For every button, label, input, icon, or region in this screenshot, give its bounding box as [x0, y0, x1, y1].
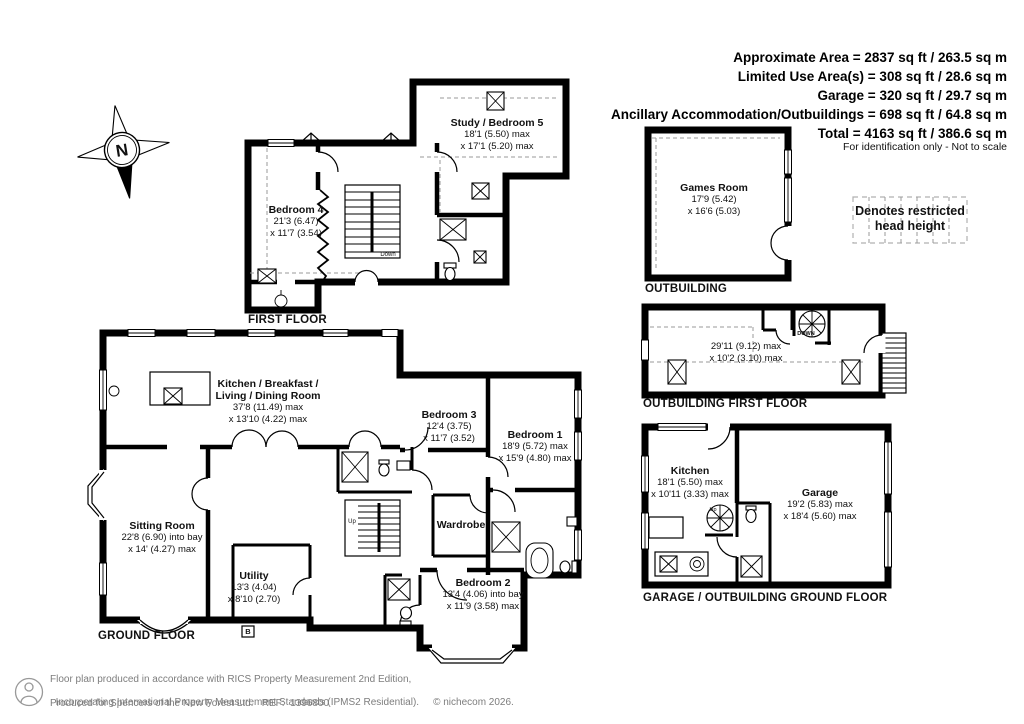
skylight-icon	[487, 92, 504, 110]
outbuilding-first-floor-dims: 29'11 (9.12) max x 10'2 (3.10) max	[709, 341, 782, 365]
room-label-bedroom4: Bedroom 4 21'3 (6.47) x 11'7 (3.54)	[269, 204, 324, 240]
sink-icon	[397, 461, 410, 470]
room-label-sitting-room: Sitting Room 22'8 (6.90) into bay x 14' …	[121, 520, 202, 556]
toilet-icon	[560, 561, 577, 573]
stairs-up-label: Up	[348, 519, 356, 525]
stairs-up-label: Up	[709, 507, 716, 513]
room-label-bedroom1: Bedroom 1 18'9 (5.72) max x 15'9 (4.80) …	[498, 429, 571, 465]
ground-floor-title: GROUND FLOOR	[98, 630, 195, 642]
stairs-down-label: Down	[380, 252, 395, 258]
room-label-study-bedroom5: Study / Bedroom 5 18'1 (5.50) max x 17'1…	[451, 117, 544, 153]
stairs-down-label: DOWN	[797, 331, 814, 337]
footer-line-1: Floor plan produced in accordance with R…	[50, 674, 411, 685]
external-stairs	[882, 333, 906, 393]
room-label-kitchen-living: Kitchen / Breakfast / Living / Dining Ro…	[216, 378, 321, 426]
room-label-utility: Utility 13'3 (4.04) x 8'10 (2.70)	[228, 570, 281, 606]
skylight-icon	[842, 360, 860, 384]
room-label-outbuilding-kitchen: Kitchen 18'1 (5.50) max x 10'11 (3.33) m…	[651, 465, 729, 501]
bay-window	[428, 644, 516, 663]
shower-icon	[342, 452, 368, 482]
boiler-label: B	[245, 627, 250, 636]
skylight-icon	[668, 360, 686, 384]
summary-line: Limited Use Area(s) = 308 sq ft / 28.6 s…	[611, 67, 1007, 86]
shower-icon	[741, 556, 762, 577]
bay-window	[88, 468, 107, 522]
floorplan-page: Approximate Area = 2837 sq ft / 263.5 sq…	[0, 0, 1024, 724]
room-label-bedroom2: Bedroom 2 13'4 (4.06) into bay x 11'9 (3…	[442, 577, 523, 613]
summary-line: Approximate Area = 2837 sq ft / 263.5 sq…	[611, 48, 1007, 67]
sink-icon	[567, 517, 577, 526]
outbuilding-first-floor-title: OUTBUILDING FIRST FLOOR	[643, 398, 807, 410]
shower-icon	[388, 579, 410, 600]
outbuilding-title: OUTBUILDING	[645, 283, 727, 295]
room-label-garage: Garage 19'2 (5.83) max x 18'4 (5.60) max	[783, 487, 856, 523]
first-floor-title: FIRST FLOOR	[248, 314, 327, 326]
garage-outbuilding-title: GARAGE / OUTBUILDING GROUND FLOOR	[643, 592, 887, 604]
room-label-wardrobe: Wardrobe	[437, 519, 486, 531]
toilet-icon	[444, 263, 456, 281]
skylight-icon	[472, 183, 489, 199]
toilet-icon	[400, 607, 412, 625]
room-label-bedroom3: Bedroom 3 12'4 (3.75) x 11'7 (3.52)	[422, 409, 477, 445]
room-label-games-room: Games Room 17'9 (5.42) x 16'6 (5.03)	[680, 182, 748, 218]
summary-line: Ancillary Accommodation/Outbuildings = 6…	[611, 105, 1007, 124]
shower-icon	[440, 219, 466, 240]
footer-line-3: Produced for Spencers of the New Forest …	[50, 698, 329, 709]
toilet-icon	[379, 460, 389, 476]
disclaimer-text: For identification only - Not to scale	[843, 141, 1007, 153]
sink-icon	[474, 251, 486, 263]
copyright-text: © nichecom 2026.	[433, 697, 514, 708]
skylight-icon	[258, 269, 276, 283]
area-summary: Approximate Area = 2837 sq ft / 263.5 sq…	[611, 48, 1007, 143]
summary-line: Garage = 320 sq ft / 29.7 sq m	[611, 86, 1007, 105]
person-icon	[16, 679, 43, 706]
toilet-icon	[746, 506, 756, 523]
bath-icon	[526, 543, 553, 578]
shower-icon	[492, 522, 520, 552]
restricted-head-height-legend: Denotes restricted head height	[855, 204, 965, 234]
